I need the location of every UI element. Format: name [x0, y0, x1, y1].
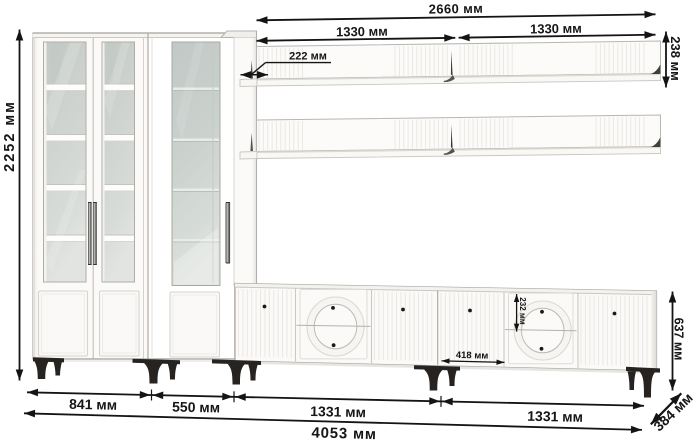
svg-text:2252 мм: 2252 мм: [2, 100, 18, 172]
svg-text:4053 мм: 4053 мм: [311, 424, 377, 443]
svg-text:1331 мм: 1331 мм: [310, 403, 366, 420]
svg-text:232 мм: 232 мм: [518, 297, 527, 324]
svg-text:222 мм: 222 мм: [289, 51, 327, 63]
svg-text:841 мм: 841 мм: [69, 396, 117, 413]
svg-text:2660 мм: 2660 мм: [429, 1, 484, 17]
svg-text:550 мм: 550 мм: [172, 398, 220, 415]
svg-text:1330 мм: 1330 мм: [530, 21, 582, 37]
svg-text:637 мм: 637 мм: [672, 318, 686, 361]
svg-text:418 мм: 418 мм: [456, 350, 489, 362]
svg-text:1331 мм: 1331 мм: [527, 408, 583, 425]
svg-text:238 мм: 238 мм: [668, 36, 683, 81]
svg-text:1330 мм: 1330 мм: [336, 24, 388, 40]
